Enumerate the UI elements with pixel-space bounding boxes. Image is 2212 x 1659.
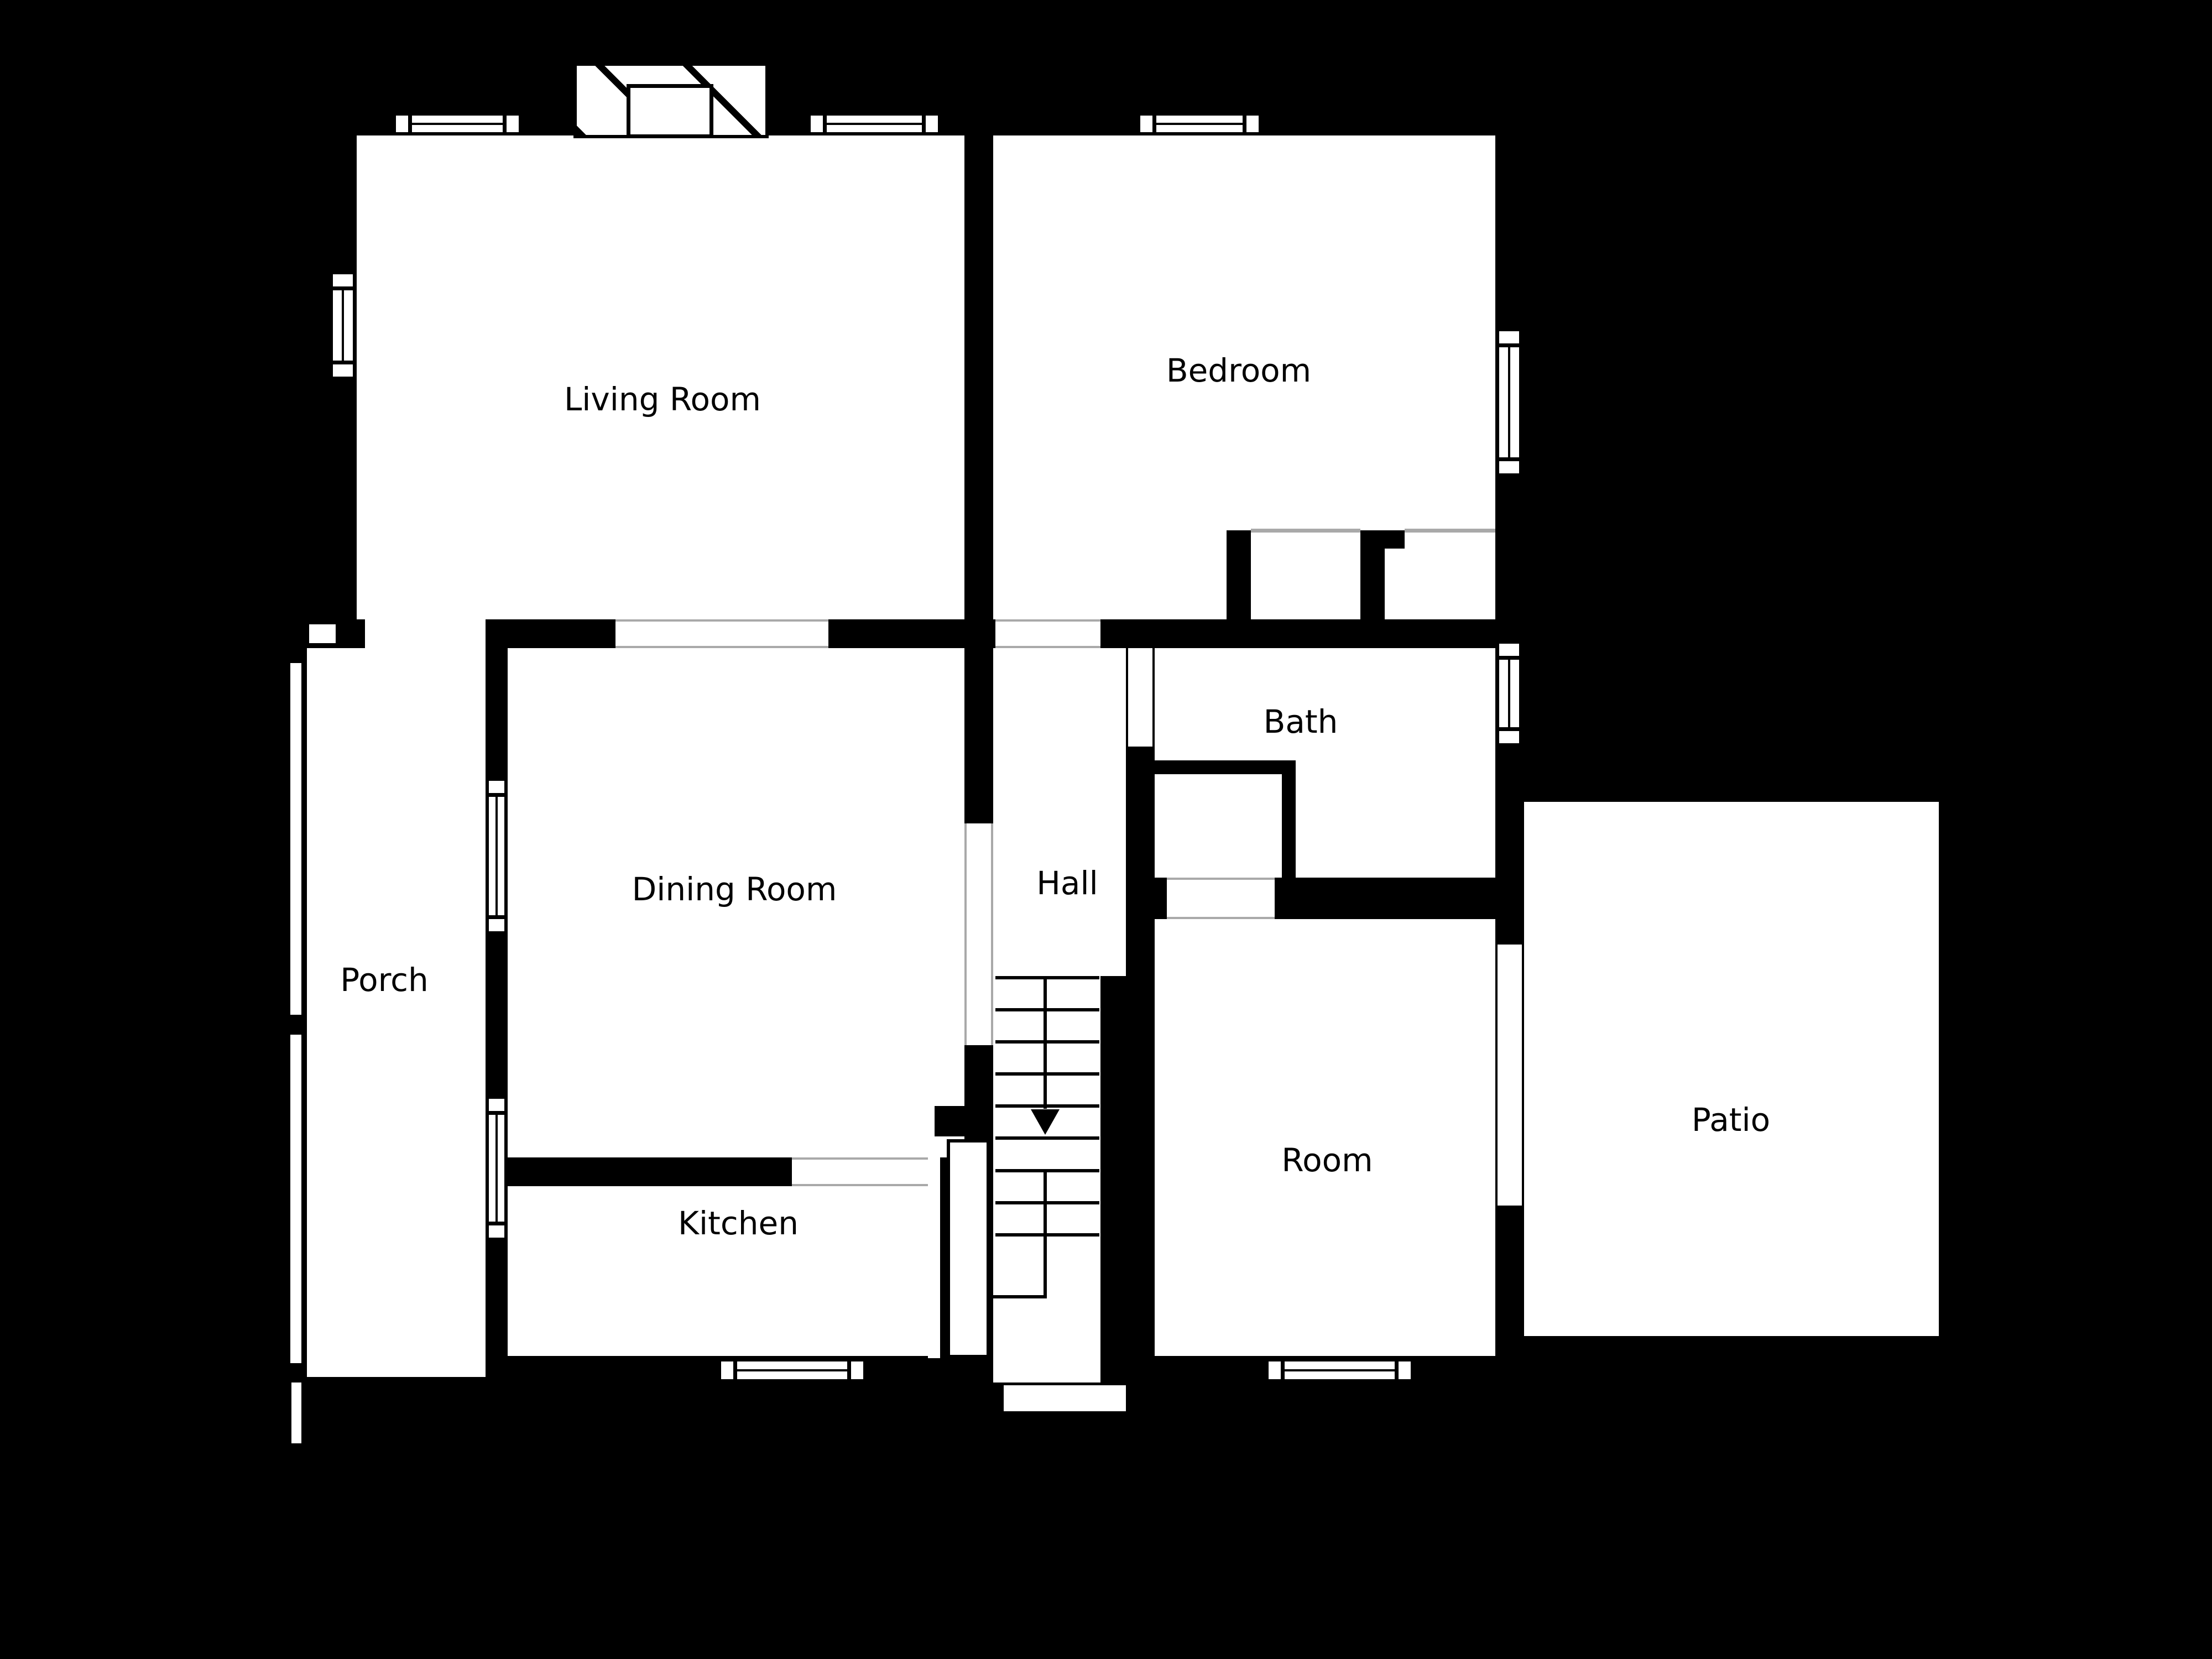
bedroom-floor — [993, 135, 1495, 530]
porch-floor — [307, 648, 486, 1377]
room-label-room: Room — [1281, 1144, 1373, 1176]
window-bedroom-top-divider — [1152, 123, 1246, 125]
stair-tread-3 — [995, 1072, 1099, 1076]
stair-divider-1 — [1044, 1169, 1047, 1233]
room-label-bath: Bath — [1264, 706, 1338, 738]
wall-closet-mid — [1360, 530, 1385, 619]
window-living-top-2-divider — [823, 123, 926, 125]
wall-divider-living-bedroom — [964, 97, 993, 648]
room-label-bedroom: Bedroom — [1166, 354, 1311, 387]
window-room-bottom-divider — [1281, 1369, 1399, 1371]
wall-band-a4 — [1100, 619, 1524, 648]
porch-outer-window-1 — [289, 661, 303, 1016]
opening-bedroom-hall-jamb-bottom — [995, 646, 1100, 648]
closet-1-floor — [1251, 530, 1360, 619]
opening-bedroom-hall-jamb-top — [995, 619, 1100, 622]
stair-divider-0 — [1044, 976, 1047, 1109]
window-kitchen-porch-divider — [495, 1111, 498, 1225]
doorway-hall-bath-jamb-right — [1152, 648, 1155, 747]
doorway-wc-room-jamb-bottom — [1167, 917, 1275, 919]
doorway-hall-bath — [1126, 648, 1155, 747]
stair-side-sliver — [928, 1139, 940, 1358]
room-label-kitchen: Kitchen — [678, 1207, 799, 1239]
stair-tread-2 — [995, 1040, 1099, 1044]
window-living-top-1-divider — [408, 123, 507, 125]
stair-tread-1 — [995, 1008, 1099, 1011]
opening-dining-hall-jamb-left — [964, 823, 967, 1045]
doorway-room-patio-jamb-right — [1522, 945, 1524, 1206]
opening-dining-hall — [964, 823, 993, 1045]
wall-band-a2 — [486, 619, 615, 648]
doorway-room-patio-jamb-left — [1495, 945, 1498, 1206]
wall-band-a3 — [828, 619, 995, 648]
window-dining-porch-divider — [495, 793, 498, 919]
wall-porch-right — [486, 648, 508, 1363]
patio-floor — [1524, 802, 1939, 1336]
room-label-living-room: Living Room — [564, 383, 761, 415]
wall-closet-stub — [1385, 530, 1405, 549]
living-room-floor — [357, 135, 964, 619]
room-label-porch: Porch — [340, 964, 429, 996]
closet-1-opening — [1251, 529, 1360, 533]
doorway-wc-room-jamb-top — [1167, 878, 1275, 880]
stair-route-vertical — [1044, 1233, 1047, 1297]
window-bedroom-right-divider — [1508, 343, 1510, 461]
opening-living-porch — [365, 619, 486, 648]
opening-dining-kitchen-jamb-top — [792, 1157, 935, 1160]
opening-bedroom-hall — [995, 619, 1100, 648]
floor-plan: Living RoomBedroomPorchDining RoomHallBa… — [0, 0, 2212, 1659]
stair-tread-5 — [995, 1136, 1099, 1140]
closet-under-stairs — [947, 1139, 990, 1358]
window-living-left-divider — [342, 286, 344, 364]
window-kitchen-bottom-divider — [733, 1369, 851, 1371]
wall-room-left — [1126, 919, 1155, 1385]
opening-living-dining-jamb-top — [615, 619, 828, 622]
stair-tread-7 — [995, 1201, 1099, 1204]
window-bath-right-divider — [1508, 656, 1510, 731]
doorway-wc-room — [1167, 878, 1275, 919]
doorway-room-patio — [1495, 945, 1524, 1206]
wall-stair-right — [1100, 976, 1126, 1411]
opening-dining-hall-jamb-right — [991, 823, 993, 1045]
porch-step — [290, 1381, 303, 1445]
porch-corner-window — [307, 623, 337, 645]
wall-stair-stub — [935, 1106, 993, 1136]
room-label-hall: Hall — [1036, 867, 1098, 899]
closet-2-opening — [1405, 529, 1495, 533]
room-floor — [1155, 919, 1498, 1356]
porch-outer-window-2 — [289, 1033, 303, 1365]
wall-closet-left — [1227, 530, 1251, 619]
stair-tread-4 — [995, 1104, 1099, 1108]
stair-tread-8 — [995, 1233, 1099, 1237]
opening-dining-kitchen-jamb-bottom — [792, 1184, 935, 1186]
wall-bath-inner-h — [1126, 760, 1296, 774]
stair-tread-0 — [995, 976, 1099, 979]
wall-bath-inner-v — [1282, 760, 1296, 878]
front-door — [1004, 1385, 1126, 1411]
bedroom-floor-ext — [993, 530, 1227, 619]
doorway-hall-bath-jamb-left — [1126, 648, 1128, 747]
room-label-dining-room: Dining Room — [632, 873, 837, 905]
stair-tread-6 — [995, 1169, 1099, 1172]
chimney-flue — [627, 84, 713, 138]
stair-down-arrow-icon — [1031, 1109, 1060, 1135]
opening-living-dining-jamb-bottom — [615, 646, 828, 648]
room-label-patio: Patio — [1692, 1104, 1770, 1136]
opening-dining-kitchen — [792, 1157, 935, 1186]
opening-living-dining — [615, 619, 828, 648]
